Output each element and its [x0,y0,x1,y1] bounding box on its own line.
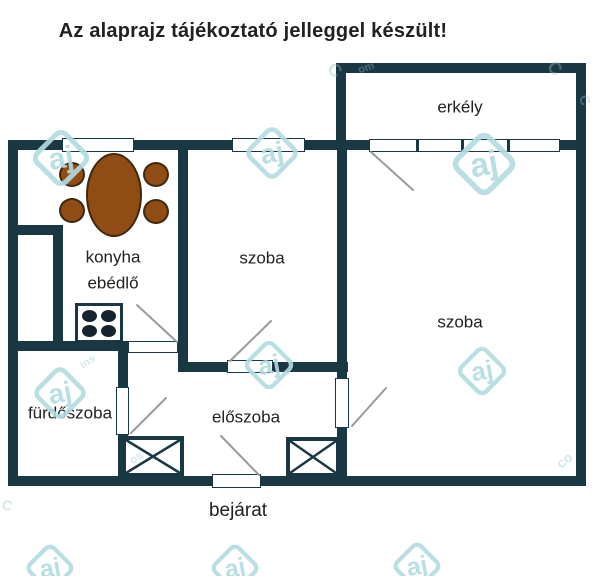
room-label-entrance: bejárat [209,497,267,526]
aj-watermark-text: aj [258,135,286,170]
aj-watermark-logo: aj [25,122,97,194]
aj-watermark-logo: aj [451,340,513,402]
closet-right [286,437,340,477]
room2-door [335,378,349,428]
wall-bathroom-right-upper [118,351,128,387]
aj-watermark-logo: aj [205,538,265,576]
stove-burner [82,325,97,337]
chair [143,199,169,224]
disclaimer-title: Az alaprajz tájékoztató jelleggel készül… [3,20,503,43]
aj-watermark-text: aj [256,348,283,381]
room-label-room2: szoba [437,309,482,335]
aj-watermark-text: aj [469,354,496,387]
aj-watermark-text: aj [46,375,74,410]
chair [143,162,169,187]
aj-watermark-text: aj [37,553,63,576]
chair [59,198,85,223]
room-label-room1: szoba [239,245,284,271]
aj-watermark-text: aj [467,144,501,185]
wall-kitchen-room1-divider [178,140,188,372]
wall-left [8,140,18,486]
entrance-door [212,474,261,488]
wall-kitchen-niche-right [53,225,63,341]
wall-room-divider-upper [337,150,347,378]
stove [75,303,123,343]
watermark-text-fragment: C [542,56,566,80]
room-label-hallway: előszoba [212,404,280,430]
bathroom-door [116,387,129,435]
balcony-window-divider [416,139,419,152]
stove-burner [101,310,116,322]
aj-watermark-logo: aj [444,124,524,204]
floor-plan-image: Az alaprajz tájékoztató jelleggel készül… [0,0,600,576]
watermark-text-fragment: co [553,449,576,472]
aj-watermark-text: aj [404,551,430,576]
aj-watermark-text: aj [46,140,77,177]
aj-watermark-text: aj [222,553,248,576]
stove-burner [82,310,97,322]
room-label-kitchen-line2: ebédlő [87,270,138,296]
aj-watermark-logo: aj [238,334,300,396]
wall-bottom-right-segment [261,476,586,486]
stove-burner [101,325,116,337]
wall-bottom-left-segment [8,476,212,486]
watermark-text-fragment: C [0,496,15,514]
aj-watermark-logo: aj [20,538,80,576]
room-label-kitchen-line1: konyha [86,244,141,270]
room-label-balcony: erkély [437,94,482,120]
wall-right [576,63,586,486]
aj-watermark-logo: aj [387,536,447,576]
kitchen-door [128,341,178,353]
aj-watermark-logo: aj [239,120,305,186]
wall-room1-bottom-left [178,362,227,372]
